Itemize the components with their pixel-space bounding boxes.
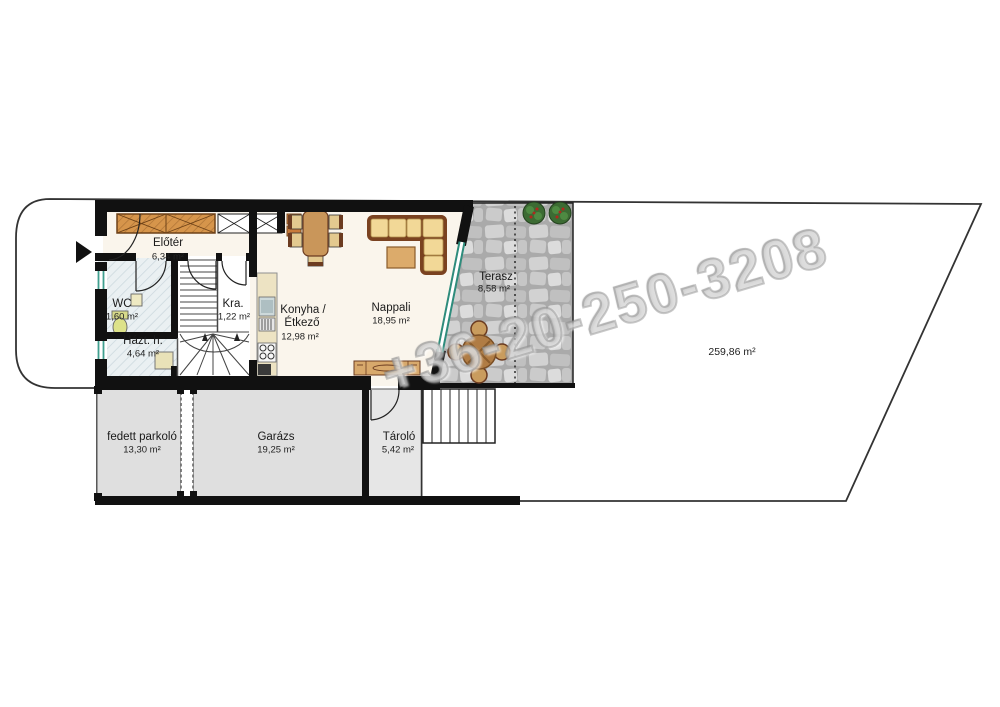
room-label-nappali: Nappali: [372, 302, 411, 314]
coffee-table-icon: [387, 247, 415, 268]
room-area-nappali: 18,95 m²: [372, 316, 410, 327]
floorplan-canvas: Előtér 6,34 m² WC 1,60 m² Házt. h. 4,64 …: [0, 0, 1000, 707]
room-label-garazs: Garázs: [257, 431, 294, 443]
room-area-konyha: 12,98 m²: [281, 332, 319, 343]
room-label-hazt: Házt. h.: [123, 335, 163, 347]
plot-area-label: 259,86 m²: [708, 346, 755, 358]
room-label-wc: WC: [112, 298, 131, 310]
room-area-garazs: 19,25 m²: [257, 445, 295, 456]
kitchen-counter-icon: [257, 273, 277, 376]
room-label-kra: Kra.: [222, 298, 243, 310]
garage-south-wall: [95, 496, 520, 505]
room-label-tarolo: Tároló: [383, 431, 416, 443]
room-label-elotere: Előtér: [153, 237, 183, 249]
room-area-hazt: 4,64 m²: [127, 349, 159, 360]
stove-icon: [258, 343, 276, 362]
room-area-elotere: 6,34 m²: [152, 252, 184, 263]
room-label-parkolo: fedett parkoló: [107, 431, 177, 443]
garage-storage-wall: [362, 389, 369, 497]
bush-icon: [523, 202, 545, 224]
oven-icon: [258, 364, 271, 375]
outdoor-steps: [423, 389, 495, 443]
room-label-konyha: Konyha /: [280, 304, 325, 316]
room-area-parkolo: 13,30 m²: [123, 445, 161, 456]
room-area-tarolo: 5,42 m²: [382, 445, 414, 456]
room-label-etkezo: Étkező: [284, 317, 319, 329]
window-icon: [95, 271, 107, 289]
room-area-terasz: 8,58 m²: [478, 284, 510, 295]
tv-cabinet-icon: [354, 361, 420, 375]
washbasin-icon: [131, 294, 142, 306]
room-area-kra: 1,22 m²: [218, 312, 250, 323]
drainer-icon: [259, 318, 275, 331]
room-label-terasz: Terasz: [479, 271, 513, 283]
wardrobe-icon: [117, 214, 215, 233]
bush-icon: [549, 202, 571, 224]
window-icon: [95, 341, 107, 359]
room-area-wc: 1,60 m²: [106, 312, 138, 323]
